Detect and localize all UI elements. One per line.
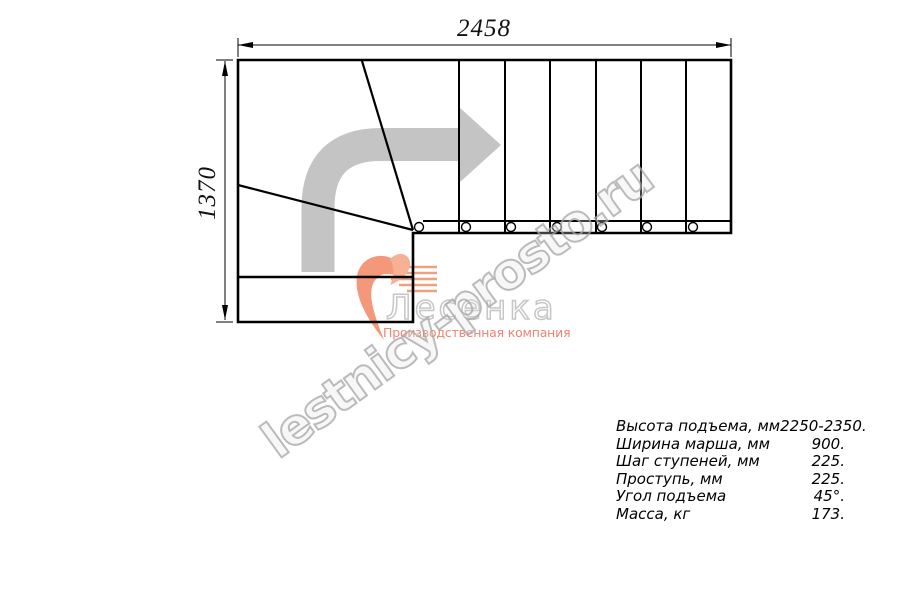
baluster-circle [689,223,698,232]
spec-label: Проступь, мм [616,471,723,489]
spec-value: 2250-2350. [780,418,867,436]
baluster-circles [415,223,698,232]
spec-label: Масса, кг [616,506,690,524]
logo-name: Лесенка [386,288,557,328]
spec-label: Шаг ступеней, мм [616,453,760,471]
baluster-circle [598,223,607,232]
baluster-circle [553,223,562,232]
baluster-circle [462,223,471,232]
dim-arrow-bottom [222,305,228,320]
spec-value: 173. [812,506,845,524]
dim-arrow-top [222,61,228,76]
dim-arrow-right [716,42,731,48]
baluster-circle [415,223,424,232]
baluster-circle [507,223,516,232]
spec-row: Масса, кг 173. [616,506,845,524]
spec-value: 225. [812,471,845,489]
baluster-circle [643,223,652,232]
spec-value: 45°. [814,488,845,506]
logo-tagline: Производственная компания [383,325,570,340]
spec-row: Высота подъема, мм 2250-2350. [616,418,845,436]
spec-label: Ширина марша, мм [616,436,770,454]
stair-plan-page: 2458 1370 Лесенка Производственная компа… [0,0,900,600]
spec-row: Ширина марша, мм 900. [616,436,845,454]
direction-arrow-icon [318,107,501,272]
height-dimension-label: 1370 [194,133,220,253]
dim-arrow-left [238,42,253,48]
spec-label: Угол подъема [616,488,726,506]
spec-value: 225. [812,453,845,471]
spec-label: Высота подъема, мм [616,418,780,436]
spec-value: 900. [812,436,845,454]
spec-row: Шаг ступеней, мм 225. [616,453,845,471]
spec-row: Угол подъема 45°. [616,488,845,506]
width-dimension-label: 2458 [424,15,544,43]
spec-row: Проступь, мм 225. [616,471,845,489]
spec-table: Высота подъема, мм 2250-2350. Ширина мар… [616,418,845,524]
